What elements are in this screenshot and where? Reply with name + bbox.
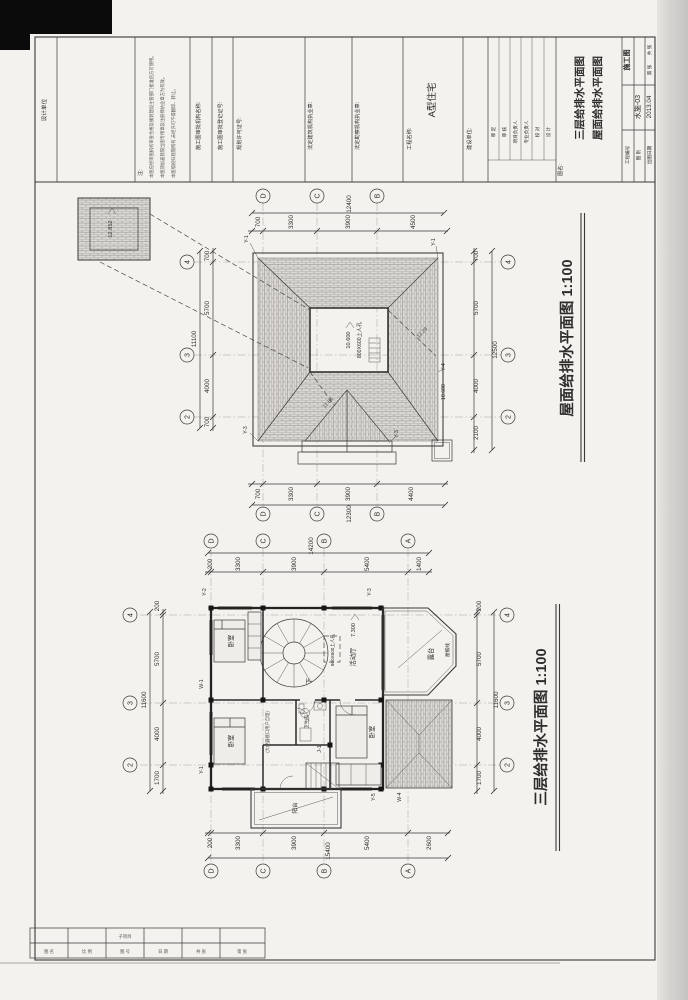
pipe-tag: Y-4 <box>441 363 447 371</box>
terrace: 露台 屋檐线 <box>383 608 456 695</box>
svg-text:4: 4 <box>128 613 135 617</box>
floor-grid-bubbles: D C B A D C B A 4 3 2 4 3 2 <box>123 534 514 878</box>
dim: 4000 <box>473 379 480 394</box>
sign-role: 设 计 <box>545 126 552 137</box>
dim: 700 <box>473 250 480 261</box>
dim: 1700 <box>154 771 161 786</box>
dim-total: 11100 <box>191 330 198 347</box>
pipe-tag: Y-3 <box>367 588 373 596</box>
dim: 4000 <box>476 727 483 742</box>
pipe-tag: J-1 <box>317 745 323 752</box>
sign-role: 审 定 <box>490 126 497 137</box>
dim: 700 <box>255 216 262 227</box>
dim: 4000 <box>204 379 211 394</box>
floor-note: (大便器接口用户自理) <box>264 711 271 753</box>
svg-text:C: C <box>315 511 322 516</box>
svg-text:D: D <box>261 511 268 516</box>
dim: 700 <box>204 250 211 261</box>
svg-text:4: 4 <box>185 260 192 264</box>
dim: 3300 <box>288 215 295 230</box>
lower-stair <box>306 763 339 789</box>
pipe-tag: Y-3 <box>243 426 249 434</box>
roof-plan: 10.600 800X600上人孔 12.29 11.84 Y-1 Y-1 Y-… <box>78 189 585 523</box>
dim: 4500 <box>410 215 417 230</box>
sheet-frame <box>0 37 655 963</box>
design-unit-label: 设计单位 <box>40 98 48 121</box>
dim-total: 11600 <box>141 691 148 709</box>
sheet-title-1: 三层给排水平面图 <box>573 56 586 140</box>
room-bedroom: 卧室 <box>226 635 235 648</box>
hall-level: 7.300 <box>351 623 357 637</box>
porch-roof <box>386 700 452 788</box>
footer-cell: 比 例 <box>82 948 92 955</box>
detail-level: 12.852 <box>108 220 114 237</box>
dim: 3300 <box>235 557 242 572</box>
title-block: 设计单位 注: 本图应经审图机构审查合格及规划建设主管部门批准后方可使用。 本图… <box>40 37 655 182</box>
dim: 1700 <box>476 771 483 786</box>
dim: 700 <box>255 488 262 499</box>
pipe-tag: Y-2 <box>202 588 208 596</box>
sheet-no: 第 张 <box>646 64 653 75</box>
project-name-label: 工程名称: <box>405 128 413 150</box>
footer-cell: 第 张 <box>237 948 247 955</box>
room-terrace: 露台 <box>426 648 435 661</box>
svg-text:D: D <box>209 868 216 873</box>
svg-text:3: 3 <box>185 353 192 357</box>
pipe-tag: Y-1 <box>431 238 437 246</box>
sheets-total: 共 张 <box>646 44 653 55</box>
svg-text:C: C <box>261 868 268 873</box>
pipe-tag: Y-1 <box>244 235 250 243</box>
footer-cell: 共 张 <box>196 948 206 955</box>
project-no-label: 工程编号 <box>624 145 631 164</box>
note-line: 本图须加盖我院出图专用章及注册师执业章方为有效。 <box>159 75 166 178</box>
dim: 200 <box>207 837 214 848</box>
field-permit: 规划许可证号: <box>235 117 243 150</box>
footer-table: 子项目 图 名 比 例 图 号 日 期 共 张 第 张 <box>30 928 265 958</box>
roof-hole-label: 800X600上人孔 <box>355 321 363 358</box>
date-value: 2013.04 <box>646 95 653 118</box>
dim: 2100 <box>473 426 480 441</box>
floor-hatch-label: 800X600上人孔 <box>329 634 336 667</box>
sign-role: 项目负责人 <box>512 120 519 143</box>
footer-cell: 图 名 <box>44 948 54 955</box>
roof-plan-title: 屋面给排水平面图 1:100 <box>558 259 576 416</box>
pipe-tag: Y-5 <box>371 793 377 801</box>
room-bath: 卫生间 <box>303 715 310 729</box>
field-survey-seal: 法定勘察机构执业章: <box>353 102 361 150</box>
sign-role: 审 核 <box>501 126 508 137</box>
dim-total: 12300 <box>346 505 353 523</box>
svg-text:2: 2 <box>506 415 513 419</box>
sign-role: 专业负责人 <box>523 120 530 143</box>
fig-value: 水施-03 <box>633 95 642 119</box>
svg-text:3: 3 <box>128 701 135 705</box>
svg-text:2: 2 <box>185 415 192 419</box>
room-balcony: 阳台 <box>291 802 299 814</box>
dim: 3300 <box>288 487 295 502</box>
dim: 3900 <box>291 836 298 851</box>
svg-text:A: A <box>406 538 413 543</box>
sheet-title-2: 屋面给排水平面图 <box>591 56 604 140</box>
dim: 2600 <box>426 836 433 851</box>
pipe-tag: Y-3 <box>394 430 400 438</box>
balcony: 阳台 <box>251 789 341 828</box>
dim: 200 <box>207 558 214 569</box>
field-approve-org: 施工图审批机构名称: <box>194 102 202 150</box>
dim: 5700 <box>473 301 480 316</box>
pipe-tag: W-1 <box>199 679 205 689</box>
dim: 5400 <box>364 557 371 572</box>
drawing-canvas: 设计单位 注: 本图应经审图机构审查合格及规划建设主管部门批准后方可使用。 本图… <box>0 0 688 1000</box>
room-bedroom: 卧室 <box>226 735 235 748</box>
dim: 5400 <box>364 836 371 851</box>
stair-down-label: 下 <box>305 678 313 684</box>
svg-text:D: D <box>261 193 268 198</box>
note-line: 本图应经审图机构审查合格及规划建设主管部门批准后方可使用。 <box>148 53 155 178</box>
dim: 3900 <box>345 487 352 502</box>
svg-text:3: 3 <box>506 353 513 357</box>
dim: 200 <box>154 600 161 611</box>
dim: 5700 <box>154 652 161 667</box>
svg-text:4: 4 <box>505 613 512 617</box>
floor-plan: 下 800X600上人孔 活动厅 7.300 <box>123 534 560 878</box>
svg-text:2: 2 <box>505 763 512 767</box>
note-line: 本图版权归我院所有,未经许可不得翻印、转让。 <box>170 87 177 178</box>
svg-text:B: B <box>322 868 329 873</box>
svg-text:D: D <box>209 538 216 543</box>
pipe-tag: W-4 <box>397 792 403 802</box>
sign-role: 校 对 <box>534 126 541 137</box>
dim: 5700 <box>476 652 483 667</box>
dim: 200 <box>476 600 483 611</box>
footer-cell: 图 号 <box>120 949 130 955</box>
svg-text:4: 4 <box>506 260 513 264</box>
footer-cell: 子项目 <box>119 933 132 940</box>
svg-text:A: A <box>406 868 413 873</box>
dim-total: 12500 <box>492 341 499 359</box>
field-arch-seal: 法定建筑机构执业章: <box>306 102 314 150</box>
date-label: 出图日期 <box>646 145 653 164</box>
dim: 5700 <box>204 301 211 316</box>
sheet-name-label: 图名: <box>556 164 564 176</box>
fig-label: 图 别 <box>635 149 642 160</box>
floor-plan-title: 三层给排水平面图 1:100 <box>532 648 550 805</box>
svg-text:B: B <box>375 511 382 516</box>
dim: 4400 <box>408 487 415 502</box>
scanned-drawing-sheet: 设计单位 注: 本图应经审图机构审查合格及规划建设主管部门批准后方可使用。 本图… <box>0 0 688 1000</box>
dim-total: 14200 <box>308 537 315 555</box>
svg-text:B: B <box>322 538 329 543</box>
svg-text:C: C <box>315 193 322 198</box>
pipe-tag: Y-1 <box>199 766 205 774</box>
client-label: 建设单位: <box>465 128 473 150</box>
footer-cell: 日 期 <box>158 949 168 955</box>
notes-header: 注: <box>136 169 144 176</box>
ladder-icon <box>369 338 380 362</box>
field-approve-no: 施工图审批登记证号: <box>216 102 224 150</box>
dim: 4000 <box>154 727 161 742</box>
roof-side-level: 10.600 <box>441 384 447 400</box>
stage-value: 施工图 <box>622 50 631 71</box>
svg-text:B: B <box>375 193 382 198</box>
dim: 700 <box>204 416 211 427</box>
roof-hole-level: 10.600 <box>346 331 352 348</box>
dim: 3900 <box>345 215 352 230</box>
dim-total: 11600 <box>493 691 500 709</box>
svg-text:3: 3 <box>505 701 512 705</box>
svg-text:2: 2 <box>128 763 135 767</box>
spiral-stair: 下 <box>260 619 328 687</box>
svg-text:C: C <box>261 538 268 543</box>
dim: 3900 <box>291 557 298 572</box>
dim-total: 12400 <box>346 195 353 213</box>
dim: 3300 <box>235 836 242 851</box>
room-hall: 活动厅 <box>348 648 357 667</box>
dim: 1400 <box>416 557 423 572</box>
dim-total: 15400 <box>325 842 332 860</box>
project-name-value: A型住宅 <box>426 83 438 118</box>
room-bedroom: 卧室 <box>367 726 376 739</box>
eave-line-label: 屋檐线 <box>444 643 451 657</box>
